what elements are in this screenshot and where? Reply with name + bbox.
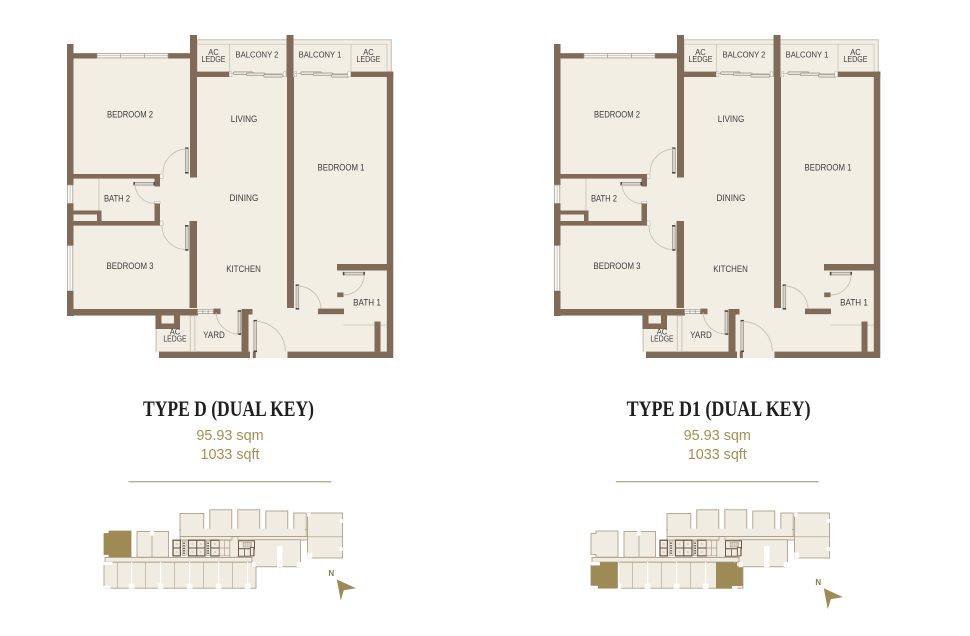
svg-text:BATH 2: BATH 2 xyxy=(104,194,130,204)
svg-text:LIVING: LIVING xyxy=(718,114,745,124)
svg-text:BATH 1: BATH 1 xyxy=(353,298,381,308)
svg-text:BALCONY 2: BALCONY 2 xyxy=(723,51,766,60)
svg-text:BEDROOM 1: BEDROOM 1 xyxy=(805,163,852,173)
svg-text:YARD: YARD xyxy=(203,330,225,340)
svg-text:BEDROOM 1: BEDROOM 1 xyxy=(318,163,365,173)
svg-text:BEDROOM 2: BEDROOM 2 xyxy=(594,110,640,120)
svg-text:DINING: DINING xyxy=(230,193,259,203)
svg-text:YARD: YARD xyxy=(690,330,712,340)
svg-text:LEDGE: LEDGE xyxy=(356,55,381,64)
svg-text:BEDROOM 3: BEDROOM 3 xyxy=(107,261,154,271)
svg-text:LEDGE: LEDGE xyxy=(843,55,868,64)
svg-text:95.93 sqm: 95.93 sqm xyxy=(684,427,751,444)
svg-text:KITCHEN: KITCHEN xyxy=(226,264,261,274)
svg-text:DINING: DINING xyxy=(717,193,746,203)
svg-text:BALCONY 1: BALCONY 1 xyxy=(786,51,829,60)
svg-text:TYPE D1 (DUAL KEY): TYPE D1 (DUAL KEY) xyxy=(627,396,811,421)
svg-text:LEDGE: LEDGE xyxy=(201,55,226,64)
svg-text:1033 sqft: 1033 sqft xyxy=(201,446,261,463)
svg-text:95.93 sqm: 95.93 sqm xyxy=(196,427,263,444)
svg-text:1033 sqft: 1033 sqft xyxy=(688,446,748,463)
svg-text:N: N xyxy=(815,578,821,587)
svg-text:BATH 2: BATH 2 xyxy=(591,194,617,204)
svg-text:LEDGE: LEDGE xyxy=(163,335,187,344)
svg-text:BATH 1: BATH 1 xyxy=(840,298,868,308)
svg-text:LEDGE: LEDGE xyxy=(650,335,674,344)
svg-text:BEDROOM 3: BEDROOM 3 xyxy=(594,261,641,271)
svg-text:TYPE D (DUAL KEY): TYPE D (DUAL KEY) xyxy=(143,396,314,421)
svg-text:N: N xyxy=(328,569,334,578)
svg-text:BALCONY 1: BALCONY 1 xyxy=(299,51,342,60)
svg-text:BALCONY 2: BALCONY 2 xyxy=(236,51,279,60)
svg-text:BEDROOM 2: BEDROOM 2 xyxy=(107,110,153,120)
svg-text:LIVING: LIVING xyxy=(231,114,258,124)
svg-text:LEDGE: LEDGE xyxy=(688,55,713,64)
svg-text:KITCHEN: KITCHEN xyxy=(713,264,748,274)
